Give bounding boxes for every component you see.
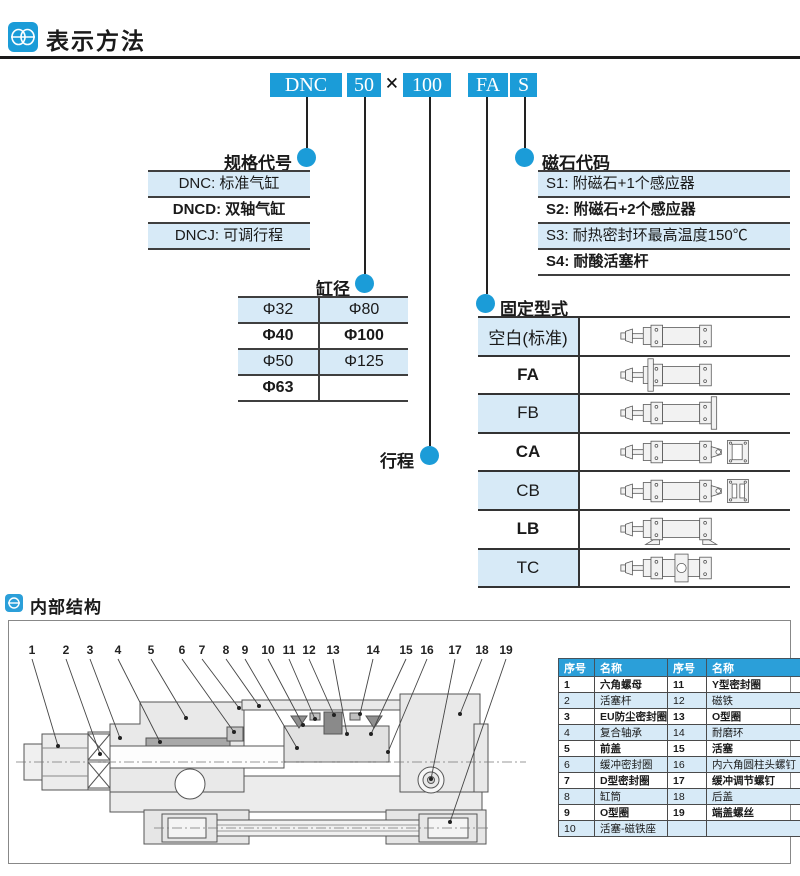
cylinder-rear-flange-diagram-icon [580,395,790,432]
mounting-label: CA [478,434,580,471]
callout-number: 1 [29,643,36,657]
bore-cell [320,376,408,400]
spec-row: DNC: 标准气缸 [148,172,310,198]
label-stroke: 行程 [348,447,414,472]
bore-row: Φ40 Φ100 [238,324,408,350]
parts-row: 4复合轴承14耐磨环 [559,725,800,741]
callout-number: 17 [448,643,462,657]
model-code-separator: × [379,70,405,98]
bore-cell: Φ125 [320,350,408,374]
parts-row: 2活塞杆12磁铁 [559,693,800,709]
cylinder-standard-diagram-icon [580,318,790,355]
bore-row: Φ50 Φ125 [238,350,408,376]
cylinder-front-flange-diagram-icon [580,357,790,394]
col-header-no: 序号 [668,659,707,677]
col-header-name: 名称 [707,659,800,677]
spec-row: DNCJ: 可调行程 [148,224,310,250]
connector-line-mounting [486,97,488,294]
parts-row: 10活塞-磁铁座 [559,821,800,837]
callout-number: 15 [399,643,413,657]
callout-number: 13 [326,643,340,657]
bullet-dot-mounting [476,294,495,313]
bore-cell: Φ100 [320,324,408,348]
cylinder-center-trunnion-diagram-icon [580,550,790,587]
section-title-representation: 表示方法 [46,22,146,56]
callout-number: 6 [179,643,186,657]
parts-header-row: 序号 名称 序号 名称 [559,659,800,677]
mounting-row: FB [478,395,790,434]
model-code-bore: 50 [347,73,381,97]
col-header-name: 名称 [595,659,668,677]
cylinder-foot-mount-diagram-icon [580,511,790,548]
callout-number: 9 [242,643,249,657]
connector-line-magnet [524,97,526,148]
mounting-label: FA [478,357,580,394]
section-title-internal-structure: 内部结构 [30,593,102,618]
spec-row: DNCD: 双轴气缸 [148,198,310,224]
brand-logo-icon [8,22,38,52]
bore-cell: Φ50 [238,350,320,374]
bore-table: Φ32 Φ80 Φ40 Φ100 Φ50 Φ125 Φ63 [238,296,408,402]
bore-cell: Φ40 [238,324,320,348]
callout-number: 19 [499,643,513,657]
callout-number: 7 [199,643,206,657]
model-code-stroke: 100 [403,73,451,97]
spec-code-table: DNC: 标准气缸 DNCD: 双轴气缸 DNCJ: 可调行程 [148,170,310,250]
mounting-row: LB [478,511,790,550]
cylinder-rear-clevis-b-diagram-icon [580,472,790,509]
callout-number: 16 [420,643,434,657]
bullet-dot-stroke [420,446,439,465]
callout-number: 5 [148,643,155,657]
callout-number: 18 [475,643,489,657]
model-code-mounting: FA [468,73,508,97]
callout-number: 10 [261,643,275,657]
mounting-label: LB [478,511,580,548]
bore-row: Φ32 Φ80 [238,298,408,324]
connector-line-stroke [429,97,431,446]
model-code-series: DNC [270,73,342,97]
magnet-row: S2: 附磁石+2个感应器 [538,198,790,224]
header-underline [0,56,800,59]
connector-line-bore [364,97,366,274]
mounting-label: FB [478,395,580,432]
callout-number: 11 [283,643,296,657]
callout-number: 2 [63,643,70,657]
mounting-label: TC [478,550,580,587]
parts-row: 8缸筒18后盖 [559,789,800,805]
bore-cell: Φ80 [320,298,408,322]
mounting-row: CA [478,434,790,473]
cylinder-rear-clevis-a-diagram-icon [580,434,790,471]
magnet-code-table: S1: 附磁石+1个感应器 S2: 附磁石+2个感应器 S3: 耐热密封环最高温… [538,170,790,276]
model-code-magnet: S [510,73,537,97]
parts-row: 1六角螺母11Y型密封圈 [559,677,800,693]
cylinder-cross-section-drawing: 12345678910111213141516171819 [14,628,554,860]
section-bullet-icon [5,594,23,612]
catalog-page: 表示方法 DNC 50 × 100 FA S 规格代号 磁石代码 缸径 固定型式… [0,0,800,876]
callout-number: 4 [115,643,122,657]
magnet-row: S4: 耐酸活塞杆 [538,250,790,276]
bullet-dot-magnet [515,148,534,167]
mounting-label: CB [478,472,580,509]
col-header-no: 序号 [559,659,595,677]
parts-list-table: 序号 名称 序号 名称 1六角螺母11Y型密封圈 2活塞杆12磁铁 3EU防尘密… [558,658,800,837]
mounting-type-table: 空白(标准) FA FB CA CB LB TC [478,316,790,588]
bore-row: Φ63 [238,376,408,402]
callout-number: 14 [366,643,380,657]
mounting-row: FA [478,357,790,396]
mounting-row: TC [478,550,790,589]
callout-number: 12 [302,643,316,657]
parts-row: 7D型密封圈17缓冲调节螺钉 [559,773,800,789]
mounting-row: 空白(标准) [478,318,790,357]
parts-row: 6缓冲密封圈16内六角圆柱头螺钉 [559,757,800,773]
bore-cell: Φ63 [238,376,320,400]
bullet-dot-bore [355,274,374,293]
parts-row: 5前盖15活塞 [559,741,800,757]
callout-number: 3 [87,643,94,657]
bore-cell: Φ32 [238,298,320,322]
callout-number: 8 [223,643,230,657]
magnet-row: S1: 附磁石+1个感应器 [538,172,790,198]
mounting-label: 空白(标准) [478,318,580,355]
parts-row: 3EU防尘密封圈13O型圈 [559,709,800,725]
connector-line-spec [306,97,308,148]
parts-row: 9O型圈19端盖螺丝 [559,805,800,821]
mounting-row: CB [478,472,790,511]
magnet-row: S3: 耐热密封环最高温度150℃ [538,224,790,250]
bullet-dot-spec [297,148,316,167]
